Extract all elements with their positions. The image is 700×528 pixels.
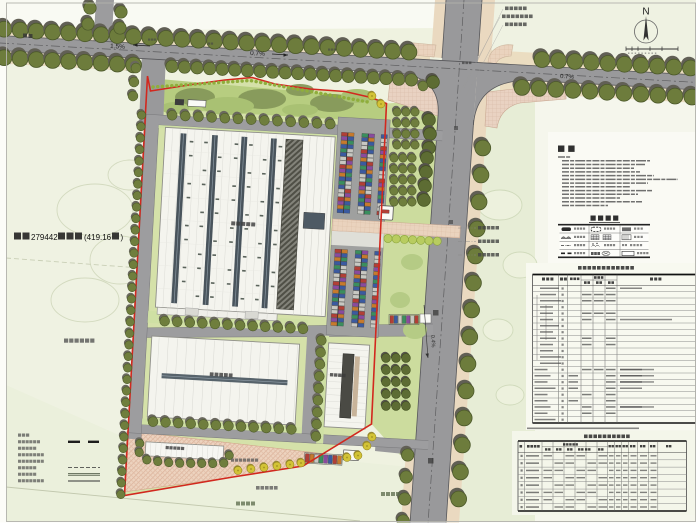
svg-text:0.4%: 0.4%	[429, 335, 436, 348]
svg-text:N: N	[642, 7, 649, 18]
svg-text:1.5%: 1.5%	[110, 43, 125, 51]
svg-text:279442: 279442	[31, 233, 58, 242]
svg-text:0.7%: 0.7%	[250, 50, 265, 58]
svg-text:(419.16: (419.16	[84, 233, 112, 242]
svg-text:0.7%: 0.7%	[560, 74, 575, 81]
svg-text:): )	[121, 233, 124, 242]
